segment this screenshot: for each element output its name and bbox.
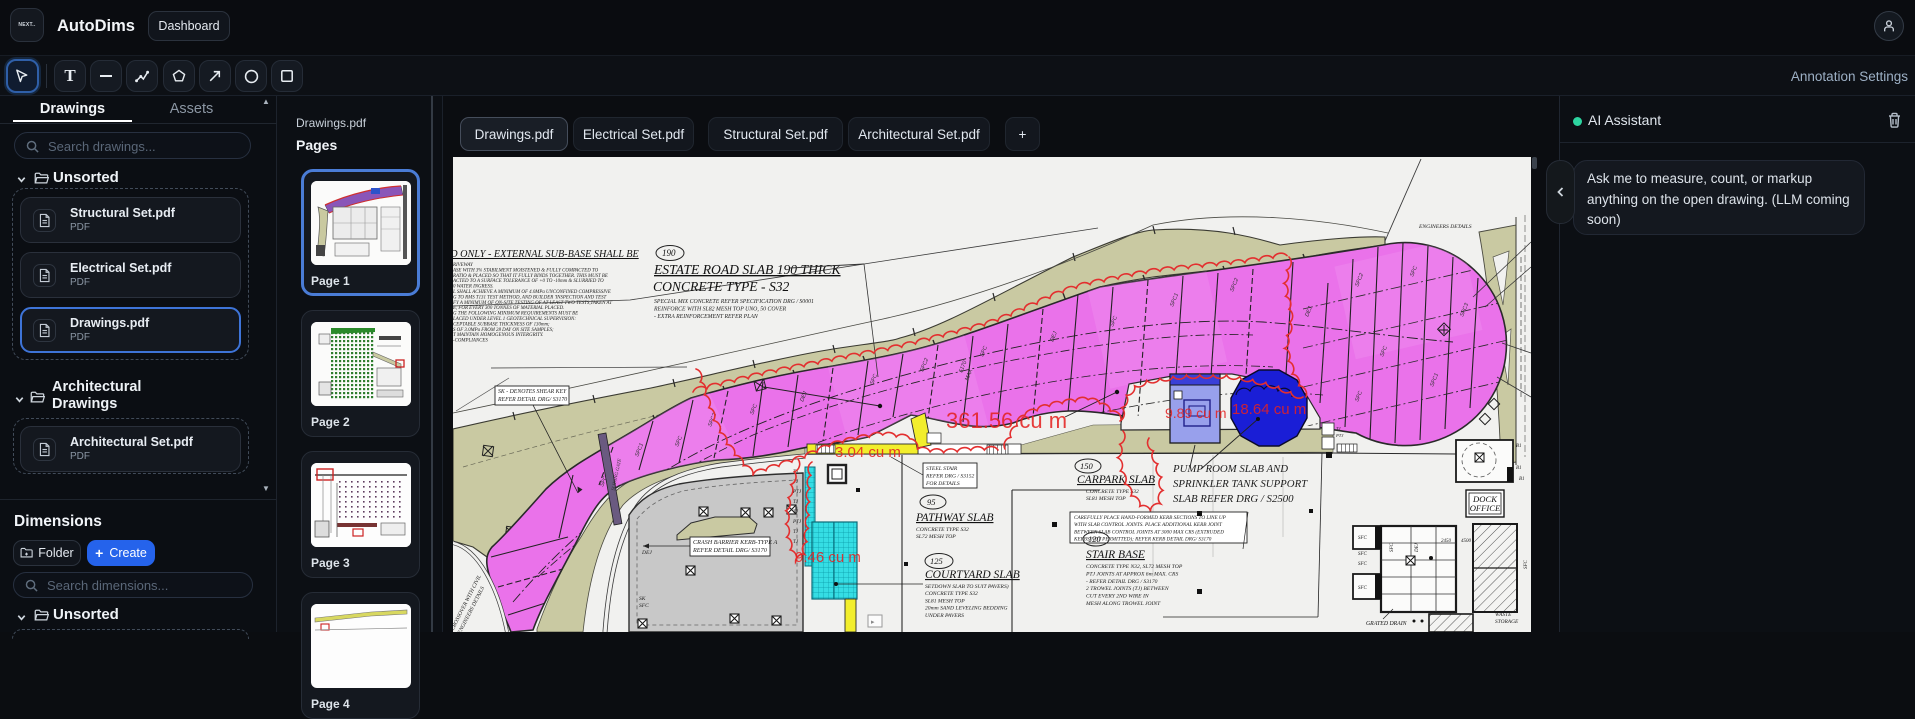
svg-text:SFC: SFC — [639, 603, 649, 609]
svg-text:SFC: SFC — [1390, 542, 1395, 552]
svg-text:SK: SK — [639, 596, 646, 602]
svg-text:ESTATE ROAD SLAB 190 THICK: ESTATE ROAD SLAB 190 THICK — [653, 262, 841, 277]
svg-text:4500: 4500 — [1461, 539, 1472, 544]
svg-text:GRATED DRAIN: GRATED DRAIN — [1366, 621, 1408, 627]
svg-text:PUMP ROOM SLAB ANDSPRINKLER TA: PUMP ROOM SLAB ANDSPRINKLER TANK SUPPORT… — [1172, 463, 1308, 505]
svg-text:COURTYARD SLAB: COURTYARD SLAB — [925, 569, 1020, 581]
svg-text:B1: B1 — [1519, 477, 1525, 482]
svg-text:STAIR BASE: STAIR BASE — [1086, 549, 1145, 561]
svg-text:DEJ: DEJ — [641, 550, 652, 556]
svg-text:SFC: SFC — [1358, 552, 1368, 557]
svg-text:▸: ▸ — [871, 619, 875, 626]
svg-text:DEJ: DEJ — [1415, 542, 1420, 553]
svg-text:18.64 cu m: 18.64 cu m — [1232, 401, 1306, 418]
svg-text:CONCRETE TYPE - S32: CONCRETE TYPE - S32 — [653, 279, 790, 294]
svg-text:150: 150 — [1080, 461, 1094, 471]
svg-text:361.56 cu m: 361.56 cu m — [946, 408, 1067, 433]
svg-text:B1: B1 — [1516, 466, 1522, 471]
svg-text:SFC: SFC — [1358, 586, 1368, 591]
svg-text:9.89 cu m: 9.89 cu m — [1165, 405, 1226, 421]
svg-text:SFC: SFC — [1524, 559, 1529, 569]
svg-text:PATHWAY SLAB: PATHWAY SLAB — [915, 512, 993, 524]
svg-text:B1: B1 — [1516, 444, 1522, 449]
svg-text:3.04 cu m: 3.04 cu m — [835, 444, 901, 461]
svg-text:AD ONLY - EXTERNAL SUB-BASE SH: AD ONLY - EXTERNAL SUB-BASE SHALL BE — [453, 249, 639, 260]
svg-text:2450: 2450 — [1441, 539, 1452, 544]
svg-text:SFC: SFC — [1358, 562, 1368, 567]
svg-text:120: 120 — [1088, 534, 1102, 544]
svg-text:125: 125 — [930, 556, 943, 566]
svg-text:190: 190 — [662, 248, 676, 258]
svg-text:SFC: SFC — [1358, 536, 1368, 541]
svg-text:9.46 cu m: 9.46 cu m — [795, 549, 861, 566]
svg-text:95: 95 — [927, 497, 936, 507]
svg-text:CARPARK SLAB: CARPARK SLAB — [1077, 474, 1155, 486]
svg-text:OFFICE: OFFICE — [1470, 503, 1501, 513]
svg-text:CRASH BARRIER KERB-TYPE AREFER: CRASH BARRIER KERB-TYPE AREFER DETAIL DR… — [692, 539, 777, 554]
svg-text:ENGINEERS DETAILS: ENGINEERS DETAILS — [1418, 224, 1472, 230]
